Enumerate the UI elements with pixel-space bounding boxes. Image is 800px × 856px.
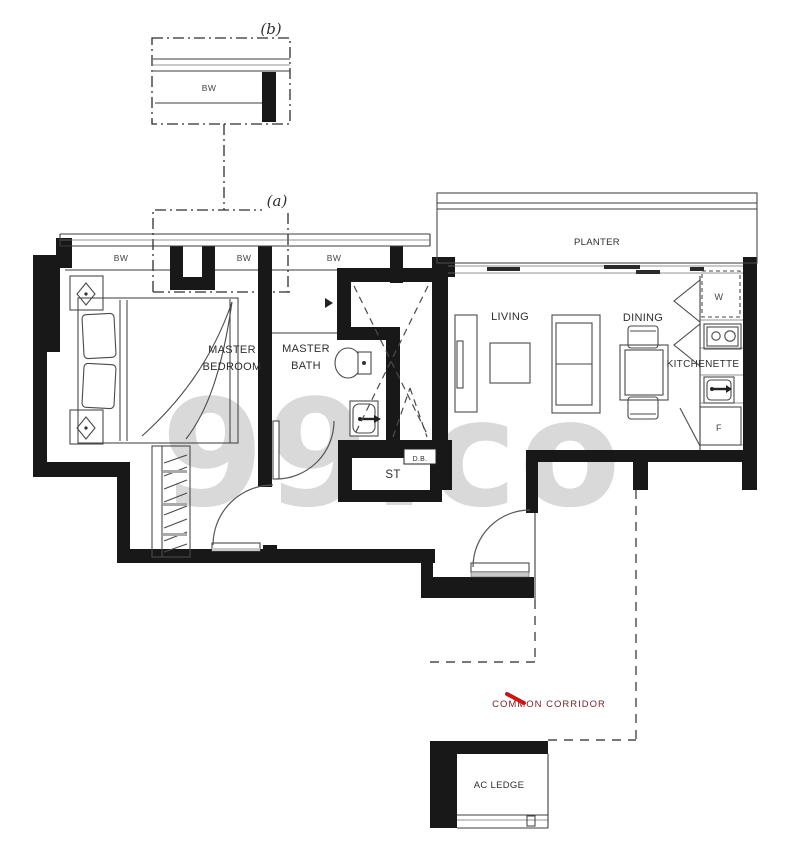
sliding-door-track [448, 265, 743, 274]
label-fridge: F [716, 423, 722, 433]
sliding-panel [636, 270, 660, 274]
room-label-dining: DINING [623, 312, 663, 324]
label-ac-ledge: AC LEDGE [474, 780, 524, 791]
toilet [335, 348, 371, 378]
room-label-master-bath-1: MASTER [282, 343, 330, 355]
kitchen-door-swing [680, 408, 700, 446]
room-label-master-bedroom-2: BEDROOM [203, 361, 262, 373]
common-corridor-label: COMMON CORRIDOR [492, 694, 606, 710]
room-label-store: ST [385, 469, 400, 481]
bathroom-basin [350, 401, 381, 436]
shower-marker-icon [325, 298, 333, 308]
cooktop [704, 324, 741, 349]
section-tag-a: (a) [267, 192, 288, 210]
sliding-panel [487, 267, 520, 271]
bw-label-detail: BW [202, 83, 217, 93]
planter-area [437, 193, 757, 263]
bw-label-1: BW [114, 253, 129, 263]
label-db: D.B. [413, 456, 428, 463]
bw-label-2: BW [237, 253, 252, 263]
bw-label-3: BW [327, 253, 342, 263]
nightstand-bottom [70, 410, 103, 444]
room-label-master-bedroom-1: MASTER [208, 344, 256, 356]
detail-box-b: BW (b) [152, 20, 290, 210]
kitchen-sink [704, 377, 734, 403]
floor-plan-canvas: 99.co BW (b) (a) [0, 0, 800, 856]
room-label-planter: PLANTER [574, 237, 620, 248]
floor-plan: 99.co BW (b) (a) [0, 0, 800, 856]
shower [272, 298, 337, 333]
sliding-panel [604, 265, 640, 269]
dining-table [620, 326, 668, 419]
label-washer: W [715, 292, 724, 302]
bifold-door [674, 280, 700, 366]
sliding-panel [690, 267, 704, 271]
bay-window-sill [60, 234, 430, 270]
room-label-kitchenette: KITCHENETTE [667, 359, 740, 370]
section-tag-b: (b) [260, 20, 281, 38]
room-label-living: LIVING [491, 311, 529, 323]
label-common-corridor: COMMON CORRIDOR [492, 699, 606, 710]
room-label-master-bath-2: BATH [291, 360, 321, 372]
nightstand-top [70, 276, 103, 310]
walls [33, 238, 757, 598]
